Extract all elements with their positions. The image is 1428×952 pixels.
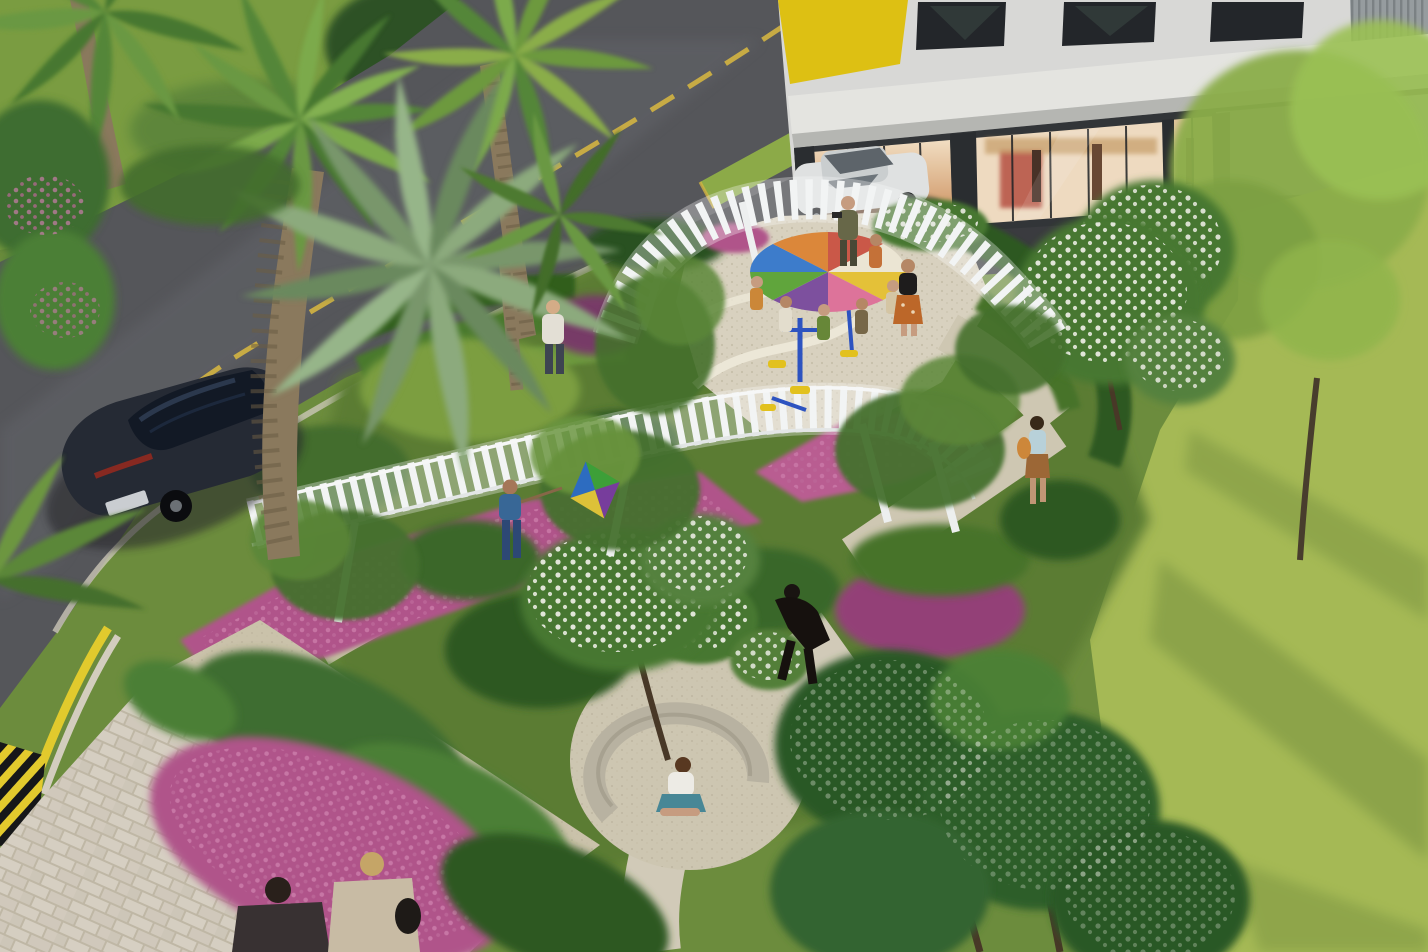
scene-rendering [0,0,1428,952]
rendering-stage [0,0,1428,952]
vignette [0,0,1428,952]
